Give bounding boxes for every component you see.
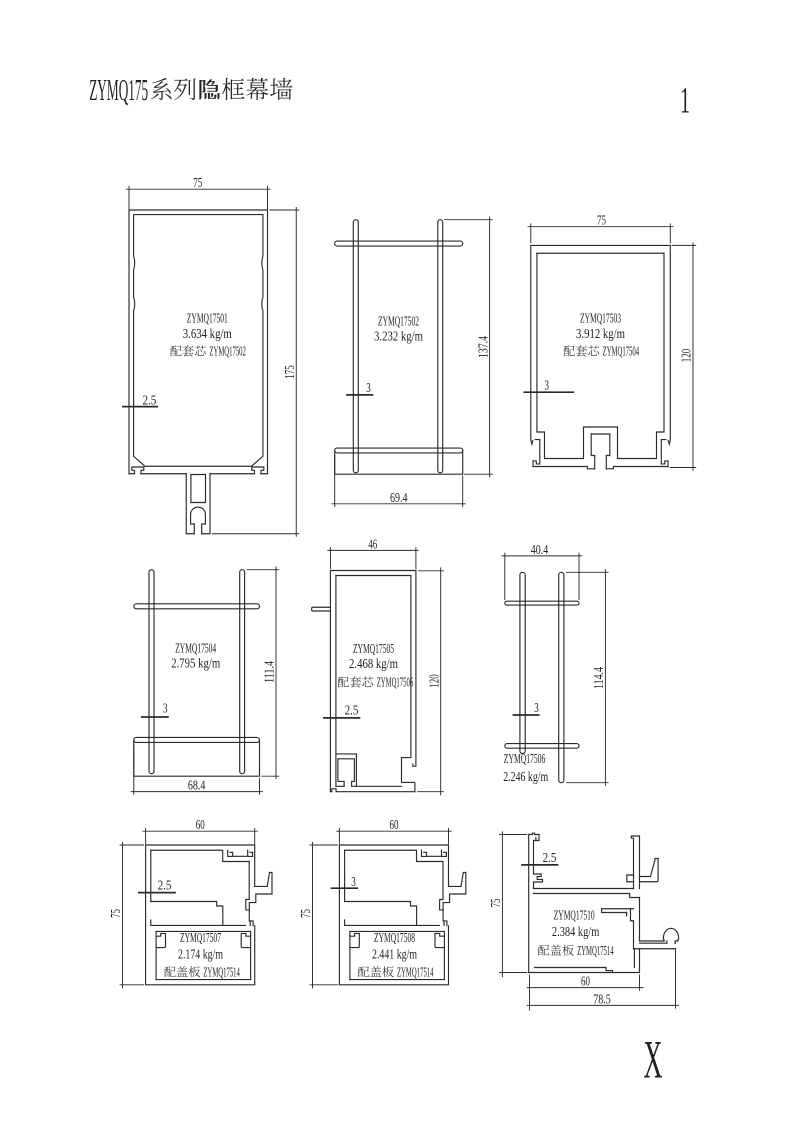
svg-text:ZYMQ17502: ZYMQ17502 — [209, 345, 246, 360]
svg-text:137.4: 137.4 — [476, 336, 491, 358]
svg-text:ZYMQ17505: ZYMQ17505 — [353, 642, 394, 657]
svg-text:75: 75 — [489, 899, 504, 908]
svg-text:68.4: 68.4 — [188, 779, 206, 794]
svg-text:ZYMQ17506: ZYMQ17506 — [504, 752, 546, 767]
svg-text:ZYMQ17504: ZYMQ17504 — [175, 641, 216, 656]
svg-text:3.232 kg/m: 3.232 kg/m — [374, 330, 423, 345]
svg-text:111.4: 111.4 — [263, 661, 278, 683]
svg-text:ZYMQ17501: ZYMQ17501 — [187, 312, 228, 327]
svg-text:2.468 kg/m: 2.468 kg/m — [349, 657, 398, 672]
svg-text:ZYMQ17510: ZYMQ17510 — [554, 909, 595, 924]
svg-text:75: 75 — [193, 176, 202, 191]
svg-text:ZYMQ175: ZYMQ175 — [89, 72, 148, 107]
svg-text:3.634 kg/m: 3.634 kg/m — [183, 327, 232, 342]
svg-text:2.5: 2.5 — [543, 851, 557, 866]
svg-text:ZYMQ17502: ZYMQ17502 — [378, 314, 419, 329]
svg-text:40.4: 40.4 — [531, 543, 549, 558]
svg-text:ZYMQ17508: ZYMQ17508 — [374, 931, 415, 946]
svg-text:175: 175 — [283, 365, 298, 379]
svg-text:3: 3 — [163, 701, 168, 716]
svg-text:60: 60 — [196, 818, 205, 833]
svg-text:114.4: 114.4 — [592, 667, 607, 689]
svg-text:2.5: 2.5 — [345, 704, 359, 719]
svg-text:46: 46 — [368, 537, 377, 552]
svg-text:ZYMQ17504: ZYMQ17504 — [603, 345, 640, 360]
svg-text:78.5: 78.5 — [593, 992, 611, 1007]
svg-text:2.246 kg/m: 2.246 kg/m — [503, 770, 548, 785]
svg-text:3: 3 — [545, 378, 550, 393]
svg-text:60: 60 — [581, 975, 590, 990]
svg-text:ZYMQ17503: ZYMQ17503 — [580, 312, 621, 327]
svg-text:2.384 kg/m: 2.384 kg/m — [552, 925, 599, 940]
svg-text:75: 75 — [299, 909, 314, 918]
svg-text:ZYMQ17506: ZYMQ17506 — [377, 676, 414, 691]
svg-text:ZYMQ17514: ZYMQ17514 — [203, 965, 240, 980]
svg-text:ZYMQ17514: ZYMQ17514 — [397, 965, 434, 980]
svg-text:ZYMQ17507: ZYMQ17507 — [180, 931, 221, 946]
svg-text:2.5: 2.5 — [158, 879, 172, 894]
svg-text:ZYMQ17514: ZYMQ17514 — [577, 944, 614, 959]
svg-text:3: 3 — [534, 701, 539, 716]
svg-text:X: X — [644, 1030, 663, 1090]
svg-text:60: 60 — [390, 818, 399, 833]
svg-text:2.441 kg/m: 2.441 kg/m — [372, 948, 417, 963]
svg-text:75: 75 — [109, 909, 124, 918]
svg-text:69.4: 69.4 — [390, 491, 408, 506]
svg-text:1: 1 — [680, 81, 690, 122]
svg-text:2.795 kg/m: 2.795 kg/m — [171, 657, 220, 672]
svg-text:120: 120 — [679, 349, 694, 363]
svg-text:75: 75 — [597, 214, 606, 229]
svg-text:3.912 kg/m: 3.912 kg/m — [576, 327, 625, 342]
svg-text:3: 3 — [366, 381, 371, 396]
svg-text:120: 120 — [427, 674, 442, 688]
svg-text:2.174 kg/m: 2.174 kg/m — [178, 948, 223, 963]
